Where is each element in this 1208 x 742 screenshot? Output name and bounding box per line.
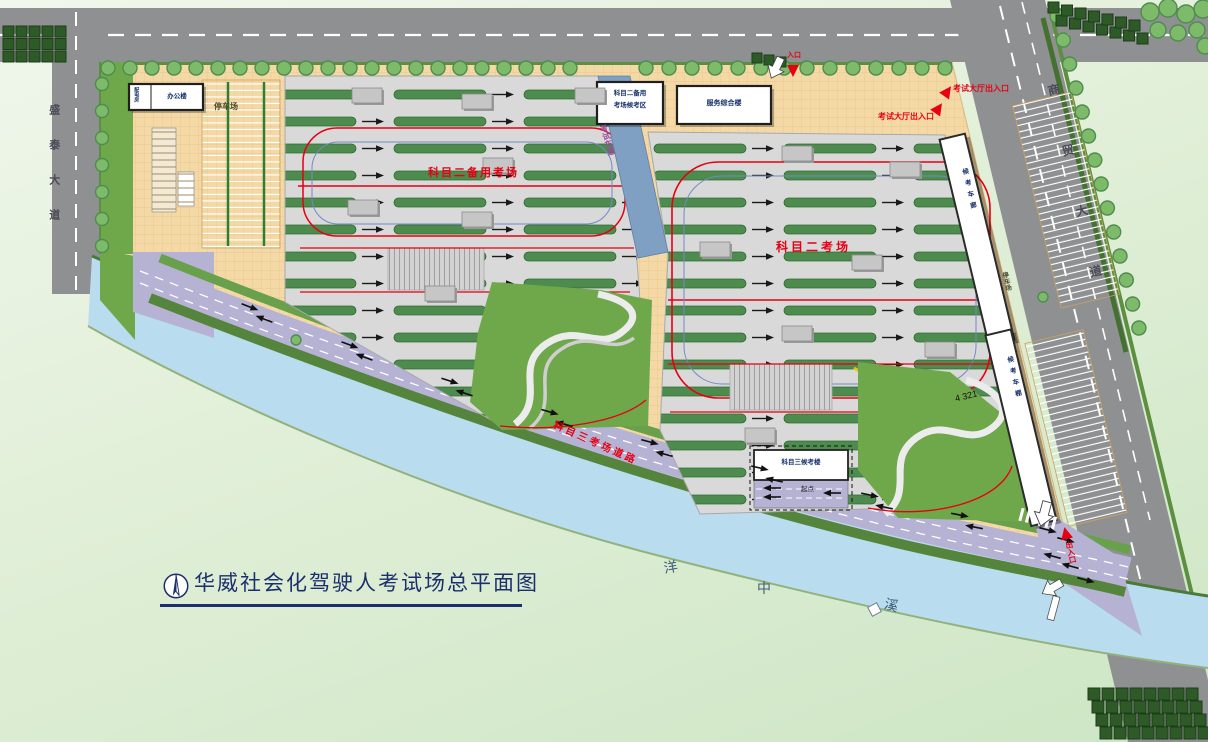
- subject2-field-label: 科目二考场: [776, 240, 851, 255]
- street-name-left: 盛泰大道: [46, 104, 60, 244]
- subject2-waiting-label-1: 科目二备用: [599, 90, 661, 98]
- subject2-waiting-label-2: 考场候考区: [599, 102, 661, 110]
- exam-hall-gate-label-upper: 考试大厅出入口: [953, 84, 1009, 94]
- river-name-char-1: 洋: [663, 559, 680, 579]
- north-gate-label: 入口: [787, 52, 801, 61]
- subject2-backup-field-label: 科目二备用考场: [428, 167, 519, 181]
- title-underline: [160, 604, 522, 607]
- west-parking-label: 停车场: [214, 102, 238, 112]
- site-plan-drawing: [0, 0, 1208, 742]
- office-building-label: 办公楼: [153, 93, 201, 101]
- north-compass-icon: [162, 570, 190, 602]
- exam-hall-gate-label-lower: 考试大厅出入口: [878, 112, 934, 122]
- river-name-char-2: 中: [757, 581, 771, 599]
- service-building-label: 服务综合楼: [679, 100, 769, 109]
- utility-building-label: 配电房: [133, 87, 139, 102]
- plan-title: 华威社会化驾驶人考试场总平面图: [194, 570, 539, 596]
- subject3-waiting-label: 科目三候考楼: [756, 459, 846, 467]
- start-point-label: 起点: [801, 486, 814, 494]
- site-plan-canvas: 盛泰大道 商贸大道 停车场 停车场 配电房 办公楼 科目二备用 考场候考区 服务…: [0, 0, 1208, 742]
